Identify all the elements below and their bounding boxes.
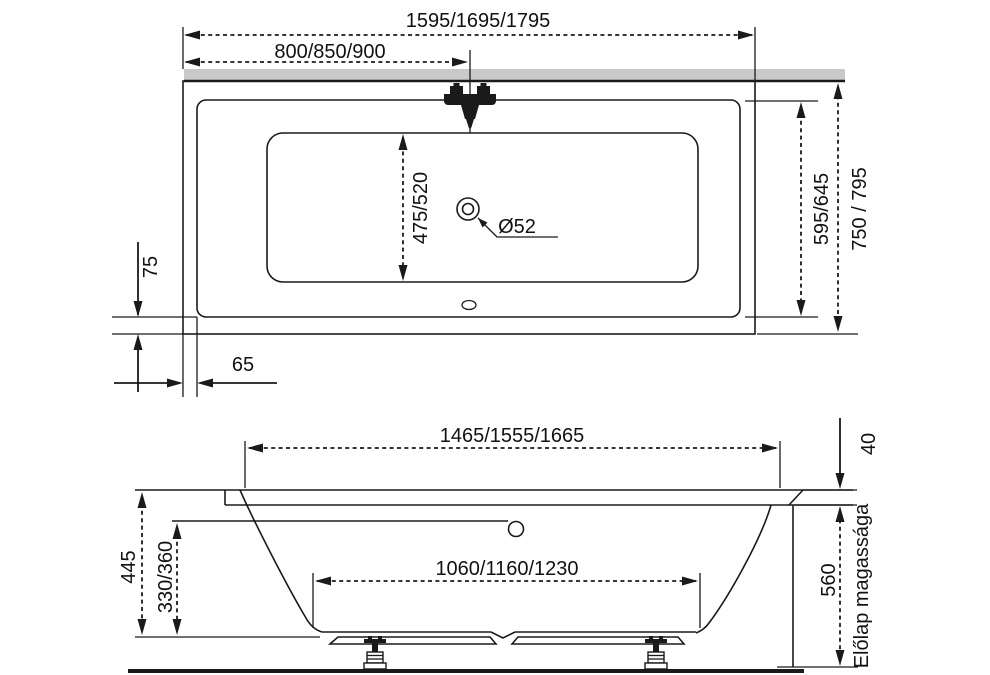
dim-tub-height-label: 445 (118, 550, 140, 583)
tub-interior (267, 133, 698, 282)
drain-icon (457, 198, 479, 220)
deck-right-endcap (789, 490, 803, 505)
dim-rim-thickness: 40 (795, 418, 880, 505)
drawing-svg: 1595/1695/1795 800/850/900 475/520 Ø52 (0, 0, 990, 675)
dim-interior-width-label: 475/520 (410, 172, 432, 244)
bathtub-technical-drawing: 1595/1695/1795 800/850/900 475/520 Ø52 (0, 0, 990, 675)
tub-left-wall (240, 490, 322, 632)
overflow-hole (509, 522, 524, 537)
dim-rim-overhang-left-label: 65 (232, 354, 254, 376)
dim-inner-width: 595/645 (745, 101, 833, 317)
front-panel-label: Előlap magassága (851, 503, 873, 668)
dim-rim-overhang-bottom: 75 (112, 242, 197, 392)
dim-upper-length: 1465/1555/1665 (245, 425, 780, 488)
dim-upper-length-label: 1465/1555/1665 (440, 425, 585, 447)
dim-front-panel-height-label: 560 (818, 563, 840, 596)
base-board-left (330, 637, 496, 644)
wall-band (184, 69, 845, 81)
foot-left-icon (364, 636, 386, 669)
dim-interior-depth: 330/360 (155, 523, 182, 635)
dim-overall-length-label: 1595/1695/1795 (406, 10, 551, 32)
foot-right-icon (645, 636, 667, 669)
dim-bottom-length-label: 1060/1160/1230 (435, 558, 578, 580)
drain-callout: Ø52 (478, 216, 558, 238)
dim-interior-width: 475/520 (399, 134, 433, 281)
dim-tub-height: 445 (118, 492, 320, 637)
dim-rim-overhang-bottom-label: 75 (140, 256, 162, 278)
drain-diameter-label: Ø52 (498, 216, 536, 238)
dim-bottom-length: 1060/1160/1230 (313, 558, 700, 628)
floor-line (128, 669, 804, 673)
dim-faucet-position-label: 800/850/900 (274, 41, 385, 63)
dim-interior-depth-label: 330/360 (155, 541, 177, 613)
top-view: 1595/1695/1795 800/850/900 475/520 Ø52 (112, 10, 871, 397)
faucet-icon (444, 50, 496, 133)
tub-right-wall (696, 505, 771, 633)
dim-inner-width-label: 595/645 (811, 173, 833, 245)
dim-faucet-position: 800/850/900 (184, 41, 468, 67)
bottom-overflow-hole (462, 301, 476, 310)
dim-front-panel-height: 560 Előlap magassága (818, 503, 873, 668)
dim-overall-width-label: 750 / 795 (849, 167, 871, 250)
side-view: 1465/1555/1665 40 1060/1160/1230 445 (118, 418, 880, 673)
dim-rim-thickness-label: 40 (858, 433, 880, 455)
